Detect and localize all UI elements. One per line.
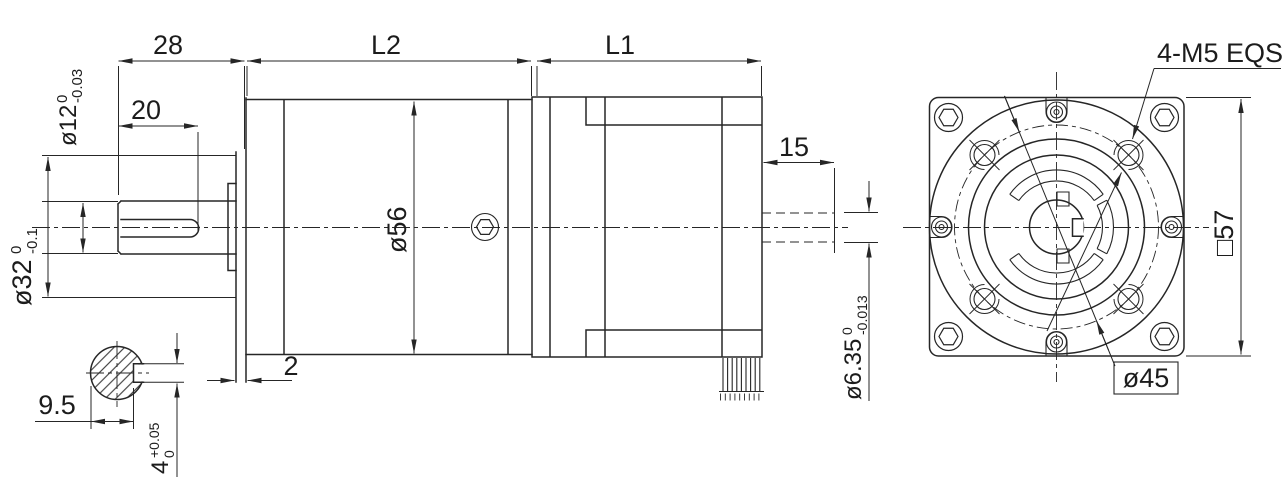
- dim-d635-label: ø6.350-0.013: [839, 295, 870, 400]
- lead-wires: [719, 358, 764, 401]
- dim-d32-label: ø320-0.1: [7, 228, 41, 306]
- dim-15-label: 15: [779, 132, 809, 162]
- drawing-page: 28 20 L2 L1 ø56 ø120-0.03: [0, 0, 1282, 488]
- retainer-arcs: [1010, 170, 1114, 284]
- dim-key-width: 4+0.050: [144, 333, 185, 477]
- dim-28-label: 28: [153, 30, 183, 60]
- front-view: 4-M5 EQS □57 ø45: [903, 38, 1282, 394]
- dim-rear-shaft-length: 15: [764, 132, 835, 253]
- keyway-slot: [121, 220, 199, 238]
- dim-sq57-label: □57: [1209, 210, 1239, 256]
- dim-gearbox-length: L2: [247, 30, 532, 96]
- set-screw-icon: [472, 214, 499, 241]
- label-4m5-text: 4-M5 EQS: [1157, 38, 1282, 68]
- side-view: 28 20 L2 L1 ø56 ø120-0.03: [7, 30, 878, 401]
- dim-flange-size: □57: [1186, 98, 1251, 357]
- dim-flange-thickness: 2: [207, 351, 299, 381]
- dim-d56-label: ø56: [382, 206, 412, 253]
- dim-20-label: 20: [131, 95, 161, 125]
- dim-2-label: 2: [283, 351, 298, 381]
- dim-gearbox-diameter: ø56: [382, 102, 414, 354]
- dim-rear-shaft-diameter: ø6.350-0.013: [839, 181, 878, 401]
- dim-d45-label: ø45: [1123, 363, 1170, 393]
- dim-95-label: 9.5: [38, 390, 76, 420]
- set-screw-hex: [477, 220, 494, 235]
- dim-pilot-diameter: ø320-0.1: [7, 156, 236, 307]
- dim-4-label: 4+0.050: [146, 422, 177, 474]
- dim-motor-length: L1: [537, 30, 762, 96]
- dim-shaft-diameter: ø120-0.03: [42, 69, 118, 254]
- drawing-canvas: 28 20 L2 L1 ø56 ø120-0.03: [0, 0, 1282, 488]
- dim-keyway-length: 20: [119, 95, 199, 232]
- shaft-cross-section: 9.5 4+0.050: [35, 333, 184, 477]
- motor-body: [532, 97, 762, 357]
- dim-l1-label: L1: [605, 30, 635, 60]
- front-flange-plate: [228, 98, 246, 382]
- dim-d12-label: ø120-0.03: [54, 69, 86, 146]
- dim-l2-label: L2: [371, 30, 401, 60]
